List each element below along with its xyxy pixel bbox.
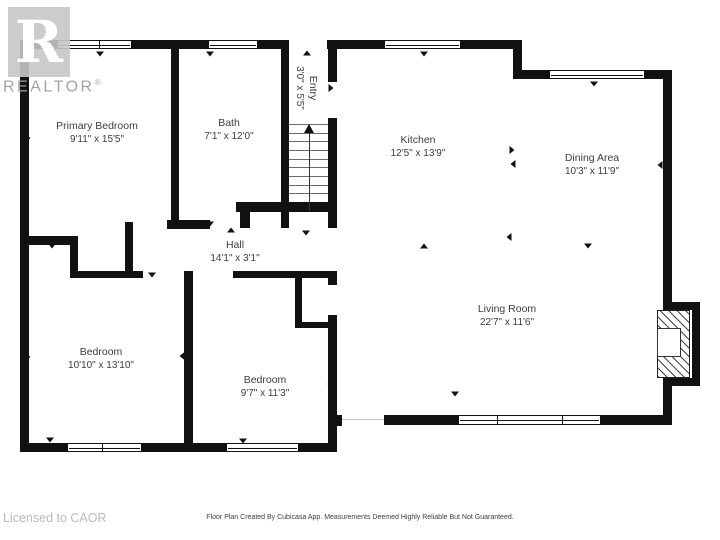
room-dimensions: 3'0" x 5'5" <box>292 66 306 110</box>
room-name: Entry <box>306 66 320 110</box>
room-label: Kitchen12'5" x 13'9" <box>391 133 446 161</box>
stair-direction-line <box>309 127 310 211</box>
wall <box>281 212 289 228</box>
room-label: Dining Area10'3" x 11'9" <box>565 151 619 179</box>
opening-marker-down-icon <box>590 82 598 87</box>
window <box>67 443 142 452</box>
wall <box>125 222 133 272</box>
room-name: Bedroom <box>241 373 290 387</box>
opening-marker-down-icon <box>96 52 104 57</box>
room-name: Bedroom <box>68 345 134 359</box>
window-pane-line <box>228 448 297 449</box>
room-label: Entry3'0" x 5'5" <box>292 66 320 110</box>
opening-marker-left-icon <box>507 233 512 241</box>
wall <box>142 443 226 452</box>
wall <box>299 443 337 452</box>
window <box>384 40 461 49</box>
room-label: Hall14'1" x 3'1" <box>210 238 259 266</box>
opening-marker-up-icon <box>227 228 235 233</box>
realtor-logo-letter: R <box>15 13 63 71</box>
wall <box>522 70 549 79</box>
room-name: Dining Area <box>565 151 619 165</box>
room-label: Primary Bedroom9'11" x 15'5" <box>56 119 138 147</box>
room-label: Bath7'1" x 12'0" <box>204 116 253 144</box>
window-pane-line <box>386 45 459 46</box>
wall <box>20 40 29 452</box>
wall <box>281 49 289 212</box>
opening-marker-down-icon <box>451 392 459 397</box>
wall <box>258 40 289 49</box>
room-label: Bedroom10'10" x 13'10" <box>68 345 134 373</box>
wall <box>20 443 67 452</box>
opening-marker-down-icon <box>206 52 214 57</box>
wall <box>171 49 179 220</box>
opening-marker-left-icon <box>658 161 663 169</box>
realtor-logo: R <box>8 7 70 77</box>
window <box>208 40 258 49</box>
opening-marker-down-icon <box>48 244 56 249</box>
wall <box>70 271 143 278</box>
room-dimensions: 9'7" x 11'3" <box>241 387 290 401</box>
wall <box>328 327 337 452</box>
room-dimensions: 9'11" x 15'5" <box>56 133 138 147</box>
wall <box>328 212 337 228</box>
window <box>458 415 601 425</box>
opening-marker-down-icon <box>206 222 214 227</box>
room-name: Hall <box>210 238 259 252</box>
staircase <box>289 124 328 202</box>
fireplace-firebox <box>657 328 681 357</box>
wall <box>384 415 458 425</box>
room-name: Bath <box>204 116 253 130</box>
room-name: Primary Bedroom <box>56 119 138 133</box>
wall <box>236 202 337 212</box>
opening-marker-left-icon <box>283 84 288 92</box>
wall <box>328 271 337 285</box>
room-dimensions: 12'5" x 13'9" <box>391 147 446 161</box>
opening-marker-up-icon <box>420 244 428 249</box>
window-mullion <box>562 416 563 424</box>
opening-marker-down-icon <box>239 439 247 444</box>
opening-marker-right-icon <box>329 84 334 92</box>
opening-marker-right-icon <box>26 353 31 361</box>
window-pane-line <box>460 420 599 421</box>
opening-marker-down-icon <box>148 273 156 278</box>
wall <box>295 278 302 328</box>
room-dimensions: 10'3" x 11'9" <box>565 165 619 179</box>
wall <box>167 220 210 229</box>
window-pane-line <box>69 448 140 449</box>
opening-marker-right-icon <box>510 146 515 154</box>
room-name: Living Room <box>478 302 536 316</box>
opening-marker-down-icon <box>584 244 592 249</box>
opening-marker-down-icon <box>302 231 310 236</box>
wall <box>328 118 337 212</box>
license-text: Licensed to CAOR <box>3 511 107 525</box>
opening-marker-up-icon <box>303 51 311 56</box>
opening-marker-left-icon <box>328 380 333 388</box>
window <box>226 443 299 452</box>
room-dimensions: 14'1" x 3'1" <box>210 252 259 266</box>
wall <box>184 271 193 443</box>
opening-marker-left-icon <box>511 160 516 168</box>
room-name: Kitchen <box>391 133 446 147</box>
opening-marker-right-icon <box>26 134 31 142</box>
window <box>549 70 645 79</box>
wall <box>663 70 672 310</box>
window-mullion <box>497 416 498 424</box>
room-dimensions: 22'7" x 11'6" <box>478 316 536 330</box>
room-label: Living Room22'7" x 11'6" <box>478 302 536 330</box>
wall <box>692 302 700 386</box>
stair-up-arrow-icon <box>304 124 314 133</box>
room-dimensions: 7'1" x 12'0" <box>204 130 253 144</box>
wall <box>132 40 208 49</box>
realtor-wordmark: REALTOR® <box>3 78 101 96</box>
window-mullion <box>99 41 100 48</box>
wall <box>240 212 250 228</box>
opening-marker-down-icon <box>420 52 428 57</box>
room-label: Bedroom9'7" x 11'3" <box>241 373 290 401</box>
wall <box>513 40 522 79</box>
window-pane-line <box>551 75 643 76</box>
disclaimer-text: Floor Plan Created By Cubicasa App. Meas… <box>0 514 720 521</box>
window-pane-line <box>210 45 256 46</box>
wall <box>327 40 384 49</box>
opening-marker-right-icon <box>187 379 192 387</box>
floor-plan: R REALTOR® Primary Bedroom9'11" x 15'5"B… <box>0 0 720 540</box>
registered-mark: ® <box>95 78 101 87</box>
opening-marker-down-icon <box>46 438 54 443</box>
opening-marker-left-icon <box>180 352 185 360</box>
doorway-opening <box>342 419 384 420</box>
wall <box>601 415 672 425</box>
wall <box>233 271 337 278</box>
window-mullion <box>102 444 103 451</box>
wall <box>328 315 337 327</box>
wall <box>328 49 337 82</box>
room-dimensions: 10'10" x 13'10" <box>68 359 134 373</box>
